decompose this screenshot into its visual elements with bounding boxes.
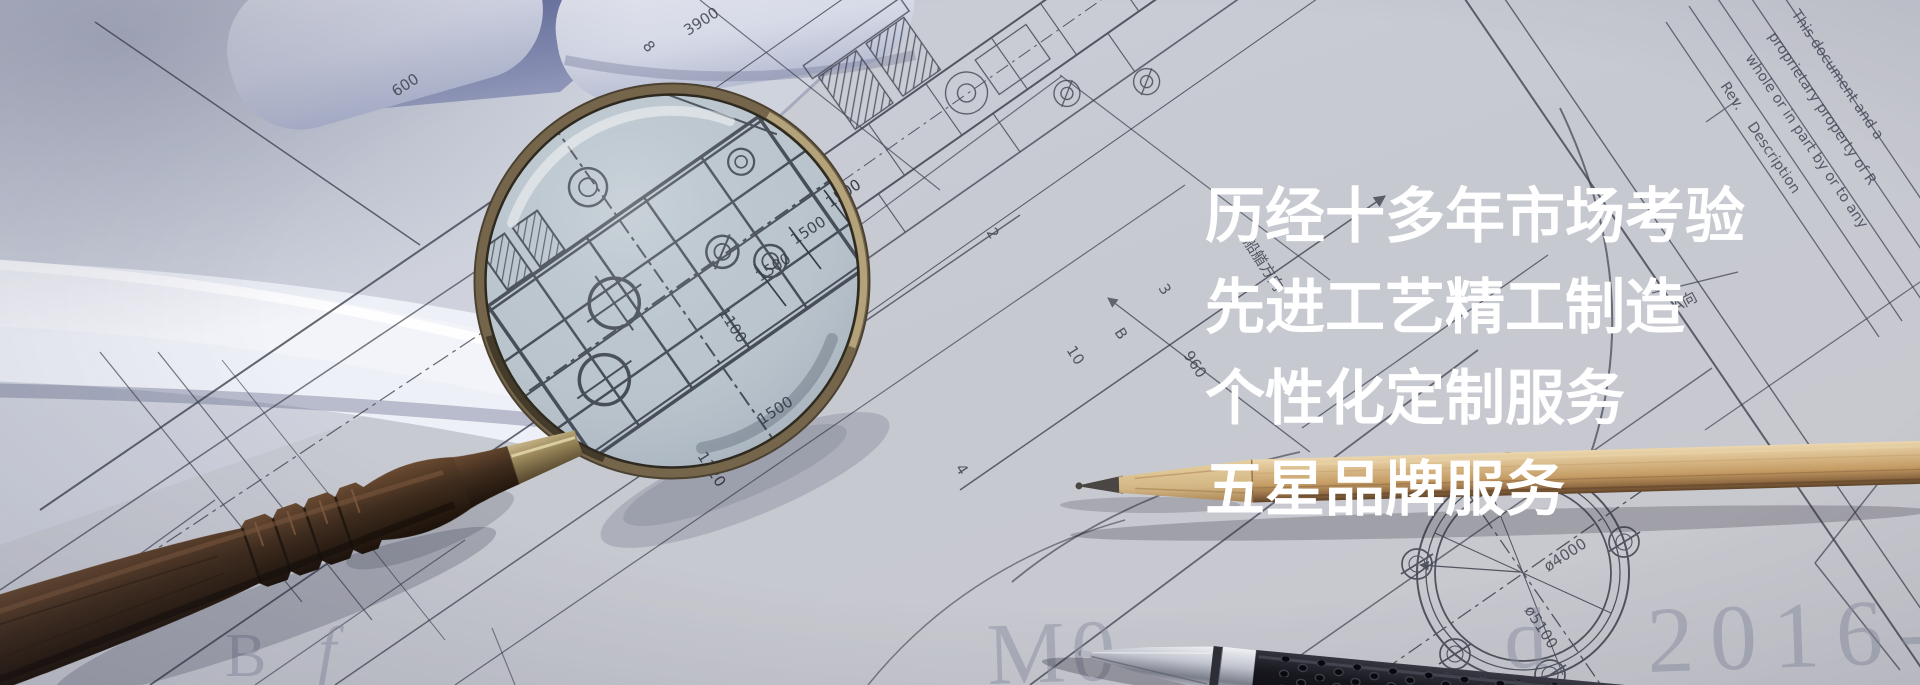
- headline-line-2: 先进工艺精工制造: [1205, 263, 1745, 354]
- headline-line-1: 历经十多年市场考验: [1205, 172, 1745, 263]
- hero-banner: This document and a proprietary property…: [0, 0, 1920, 685]
- headline-line-4: 五星品牌服务: [1205, 445, 1745, 536]
- headline: 历经十多年市场考验 先进工艺精工制造 个性化定制服务 五星品牌服务: [1205, 172, 1745, 536]
- headline-line-3: 个性化定制服务: [1205, 354, 1745, 445]
